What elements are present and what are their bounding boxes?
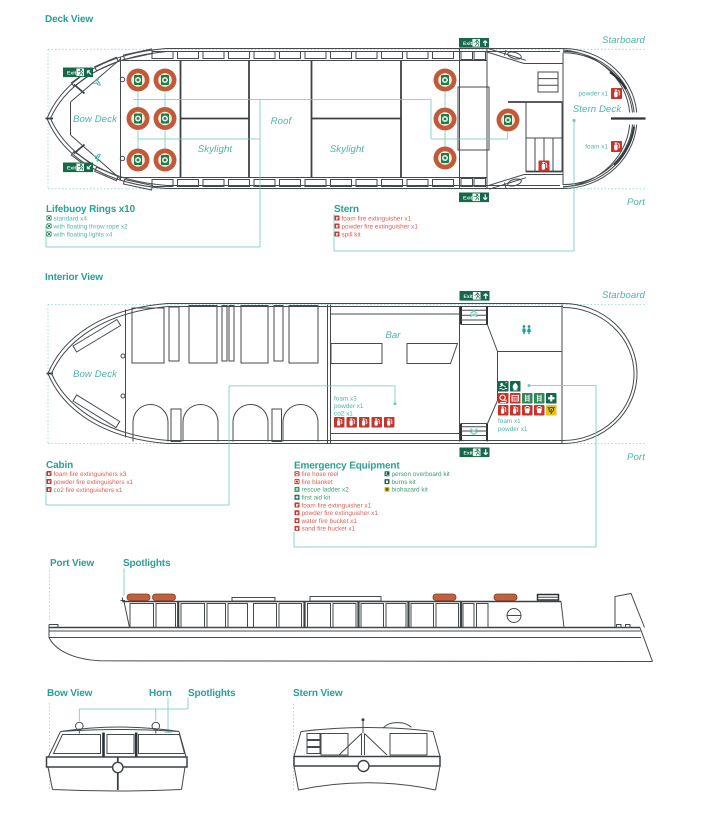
svg-text:Interior View: Interior View: [45, 272, 103, 283]
svg-text:Bow View: Bow View: [47, 688, 93, 699]
svg-text:co2 x1: co2 x1: [334, 411, 353, 418]
svg-text:sand fire bucket x1: sand fire bucket x1: [302, 526, 356, 533]
svg-text:Roof: Roof: [271, 116, 293, 127]
svg-text:Stern: Stern: [334, 204, 359, 215]
svg-text:foam x1: foam x1: [498, 418, 521, 425]
svg-text:Port: Port: [627, 197, 645, 208]
svg-text:foam fire extinguisher x1: foam fire extinguisher x1: [302, 502, 372, 509]
svg-text:burns kit: burns kit: [392, 479, 416, 486]
svg-text:foam fire extinguishers x3: foam fire extinguishers x3: [54, 471, 127, 478]
svg-text:standard x4: standard x4: [54, 216, 88, 223]
svg-text:Cabin: Cabin: [46, 460, 73, 471]
svg-text:foam fire extinguisher x1: foam fire extinguisher x1: [342, 216, 412, 223]
svg-text:Spotlights: Spotlights: [188, 688, 236, 699]
svg-text:foam x1: foam x1: [585, 144, 608, 151]
svg-text:spill kit: spill kit: [342, 232, 361, 239]
svg-text:water fire bucket x1: water fire bucket x1: [301, 518, 358, 525]
svg-text:Bow Deck: Bow Deck: [73, 369, 118, 380]
svg-text:Starboard: Starboard: [602, 290, 646, 301]
svg-text:Bar: Bar: [385, 330, 401, 341]
svg-text:fire hose reel: fire hose reel: [302, 471, 339, 478]
svg-text:person overboard kit: person overboard kit: [392, 471, 450, 478]
svg-text:Skylight: Skylight: [330, 144, 365, 155]
svg-text:biohazard kit: biohazard kit: [392, 487, 428, 494]
svg-text:powder x1: powder x1: [579, 91, 609, 98]
svg-text:Stern Deck: Stern Deck: [573, 104, 623, 115]
svg-text:Stern View: Stern View: [293, 688, 343, 699]
svg-text:with floating lights x4: with floating lights x4: [53, 232, 113, 239]
svg-text:co2 fire extinguishers x1: co2 fire extinguishers x1: [54, 487, 123, 494]
svg-text:Lifebuoy Rings x10: Lifebuoy Rings x10: [46, 204, 136, 215]
svg-text:Emergency Equipment: Emergency Equipment: [294, 461, 400, 472]
svg-text:fire blanket: fire blanket: [302, 479, 333, 486]
svg-text:powder fire extinguisher x1: powder fire extinguisher x1: [342, 224, 419, 231]
svg-text:Port: Port: [627, 452, 645, 463]
svg-text:powder fire extinguisher x1: powder fire extinguisher x1: [302, 510, 379, 517]
svg-text:first aid kit: first aid kit: [302, 495, 331, 502]
svg-text:Skylight: Skylight: [198, 144, 233, 155]
svg-text:Port View: Port View: [50, 558, 94, 569]
svg-text:Horn: Horn: [149, 688, 172, 699]
svg-text:powder fire extinguishers x1: powder fire extinguishers x1: [54, 479, 134, 486]
svg-text:Deck View: Deck View: [45, 14, 93, 25]
svg-text:Bow Deck: Bow Deck: [73, 114, 118, 125]
svg-text:with floating throw rope x2: with floating throw rope x2: [53, 224, 129, 231]
svg-text:powder x1: powder x1: [334, 403, 364, 410]
svg-text:powder x1: powder x1: [498, 426, 528, 433]
svg-text:Spotlights: Spotlights: [123, 558, 171, 569]
svg-text:Starboard: Starboard: [602, 35, 646, 46]
svg-text:foam x3: foam x3: [334, 396, 357, 403]
svg-text:rescue ladder x2: rescue ladder x2: [302, 487, 350, 494]
